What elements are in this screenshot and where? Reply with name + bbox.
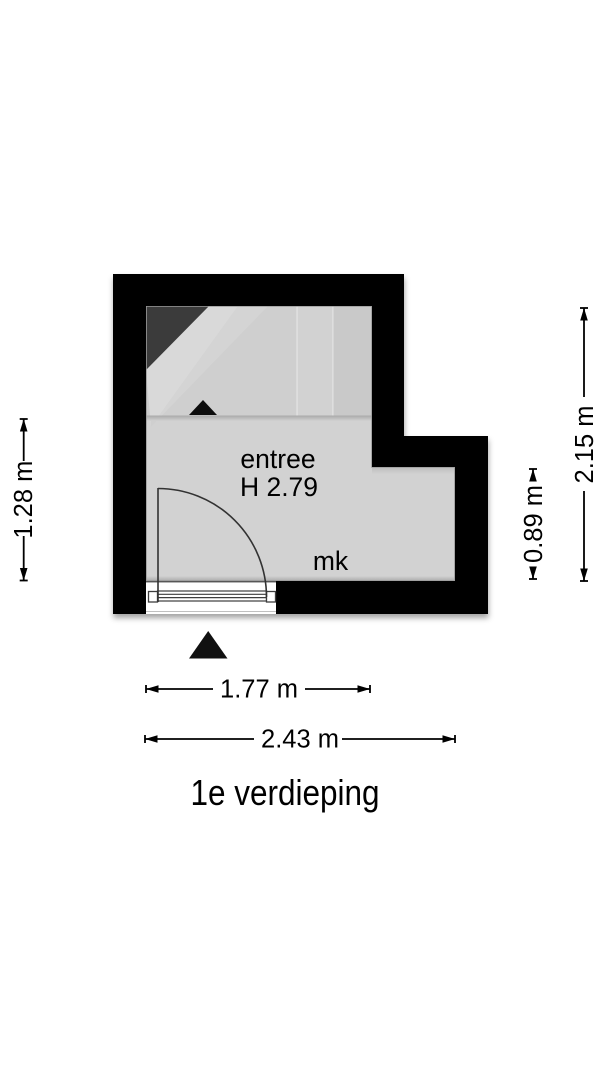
svg-text:entree: entree [240,444,315,474]
svg-text:H 2.79: H 2.79 [240,472,318,502]
svg-text:1.77 m: 1.77 m [220,676,298,704]
svg-text:1.28 m: 1.28 m [10,461,38,539]
svg-text:0.89 m: 0.89 m [520,485,548,563]
svg-text:mk: mk [313,546,349,576]
svg-text:1e verdieping: 1e verdieping [190,773,379,813]
svg-text:2.15 m: 2.15 m [571,406,599,484]
svg-text:2.43 m: 2.43 m [261,726,339,754]
